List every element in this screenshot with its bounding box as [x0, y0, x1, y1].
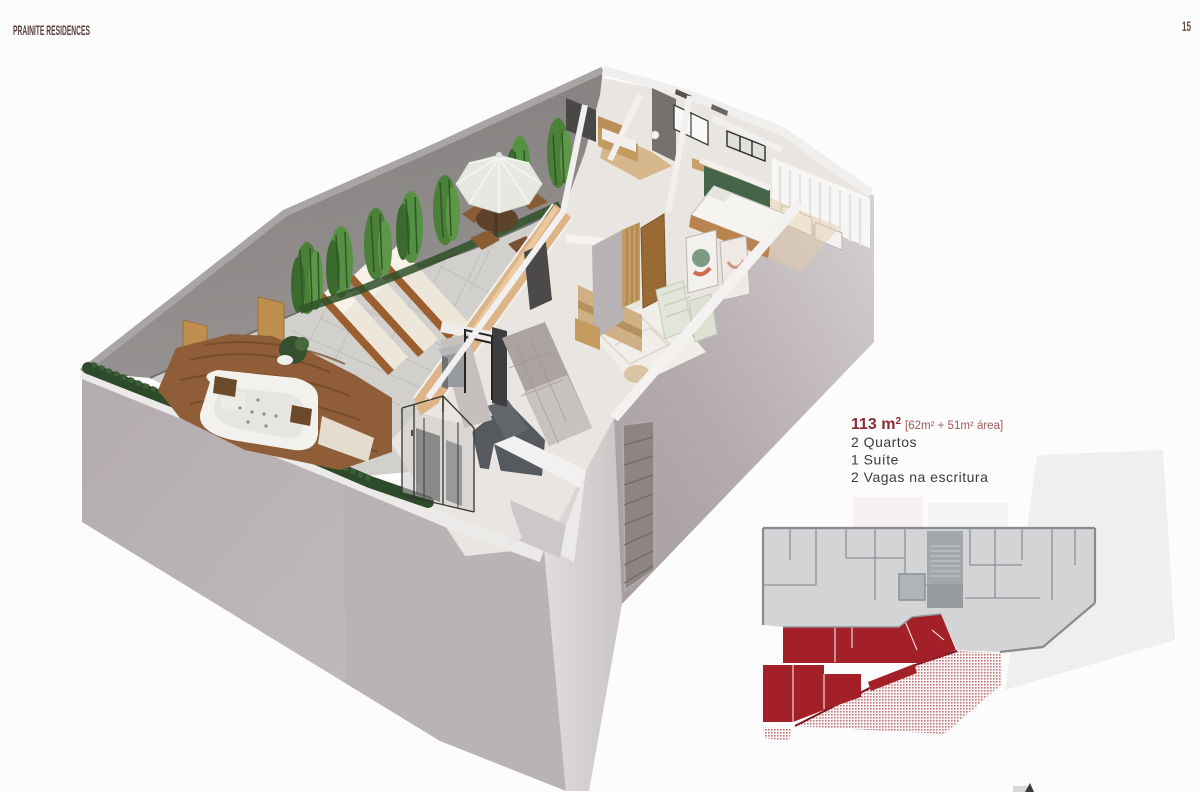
svg-text:PRAINITE RESIDENCES: PRAINITE RESIDENCES: [13, 23, 90, 38]
svg-text:15: 15: [1182, 18, 1191, 34]
svg-text:2 Quartos: 2 Quartos: [851, 434, 917, 450]
svg-text:1 Suíte: 1 Suíte: [851, 452, 899, 468]
svg-text:2 Vagas na escritura: 2 Vagas na escritura: [851, 469, 988, 485]
